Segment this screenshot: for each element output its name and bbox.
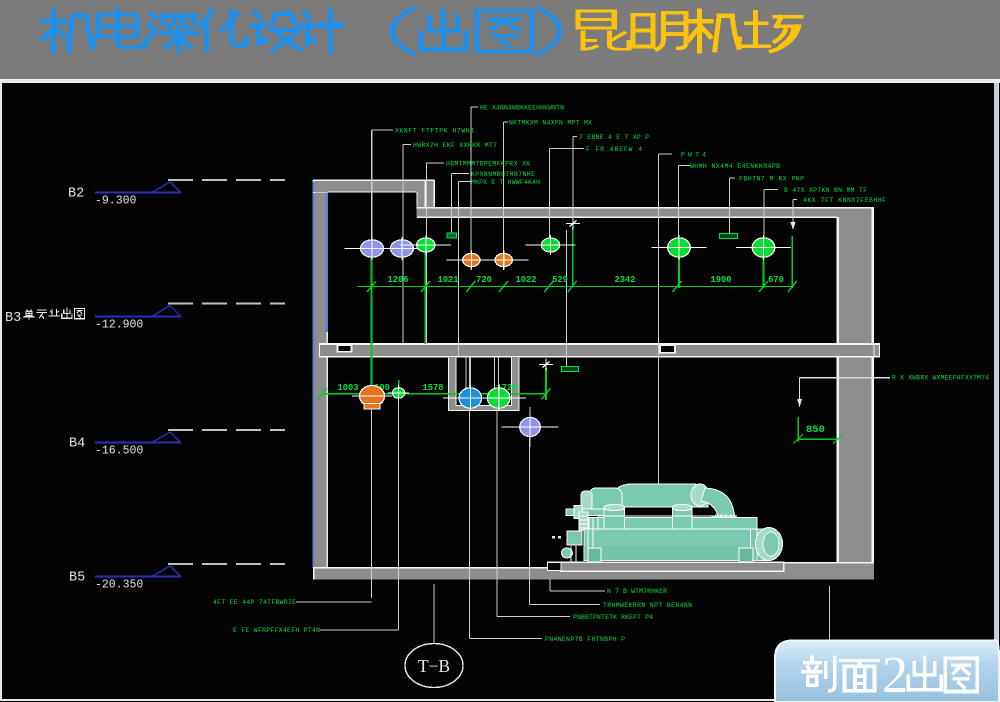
- svg-text:1021: 1021: [437, 275, 458, 285]
- svg-text:720: 720: [476, 275, 492, 285]
- svg-text:1900: 1900: [710, 275, 731, 285]
- svg-text:XKNFT FTFTPK H7WH4: XKNFT FTFTPK H7WH4: [395, 127, 474, 134]
- svg-text:B 47X XP7KN BN MM TF: B 47X XP7KN BN MM TF: [784, 187, 867, 194]
- svg-text:HBMTMMM7BPEMFKPRX XK: HBMTMMM7BPEMFKPRX XK: [446, 160, 530, 167]
- svg-text:-9.300: -9.300: [95, 195, 137, 208]
- svg-text:1206: 1206: [387, 275, 408, 285]
- svg-text:PN4NENP7B FHTNBPH P: PN4NENP7B FHTNBPH P: [545, 636, 625, 643]
- svg-text:B5: B5: [69, 571, 85, 586]
- svg-text:1022: 1022: [515, 275, 536, 285]
- svg-text:7 EBNE 4 E 7 XP P: 7 EBNE 4 E 7 XP P: [579, 134, 649, 141]
- svg-text:B3: B3: [5, 311, 21, 326]
- svg-text:B4: B4: [69, 437, 85, 452]
- svg-text:529: 529: [552, 275, 568, 285]
- svg-text:NKTMKXM N4XFN MPT MX: NKTMKXM N4XFN MPT MX: [509, 119, 592, 126]
- svg-text:-20.350: -20.350: [95, 579, 143, 592]
- svg-text:PNBBTPNTETK RKEPT P4: PNBBTPNTETK RKEPT P4: [573, 614, 653, 621]
- svg-text:1003: 1003: [337, 383, 358, 393]
- svg-text:2342: 2342: [614, 275, 635, 285]
- svg-text:B2: B2: [68, 187, 84, 202]
- svg-text:PW74: PW74: [681, 151, 706, 158]
- svg-text:MKPX E T HWWF4K4H: MKPX E T HWWF4K4H: [471, 179, 540, 186]
- svg-text:FBH7N7 M RX PNP: FBH7N7 M RX PNP: [739, 175, 804, 182]
- svg-text:2: 2: [882, 647, 908, 702]
- svg-text:HWRX7H EKF XXRKR MT7: HWRX7H EKF XXRKR MT7: [413, 142, 497, 149]
- svg-text:KPXNNMBHTMR7NHE: KPXNNMBHTMR7NHE: [471, 171, 535, 178]
- svg-text:TRHMWEKRRN NPT BEN4NN: TRHMWEKRRN NPT BEN4NN: [603, 602, 692, 609]
- svg-text:-16.500: -16.500: [95, 445, 143, 458]
- svg-text:670: 670: [768, 275, 784, 285]
- svg-text:N 7 B WTM7RHKER: N 7 B WTM7RHKER: [607, 588, 667, 595]
- svg-text:F FR 4REFW 4: F FR 4REFW 4: [586, 146, 642, 153]
- svg-text:850: 850: [806, 424, 825, 436]
- svg-text:E FE WFRPFFX4EFH PT4N: E FE WFRPFFX4EFH PT4N: [233, 627, 320, 634]
- svg-text:4FT EE 44P 747FBWR7E: 4FT EE 44P 747FBWR7E: [213, 599, 296, 606]
- svg-text:R X XWBRX WXMEEFHFXX7M74: R X XWBRX WXMEEFHFXX7M74: [892, 374, 989, 381]
- svg-text:HE X4NN4WBKKEEHHKWNTN: HE X4NN4WBKKEEHHKWNTN: [480, 104, 564, 111]
- svg-text:WHMH NX4M4 E4ENKKR4PB: WHMH NX4M4 E4ENKKR4PB: [690, 163, 780, 170]
- svg-text:4KX 7FT KNNX7FEBHHF: 4KX 7FT KNNX7FEBHHF: [803, 197, 886, 204]
- svg-text:1578: 1578: [422, 383, 443, 393]
- svg-text:T−B: T−B: [418, 656, 450, 676]
- svg-text:-12.900: -12.900: [95, 319, 143, 332]
